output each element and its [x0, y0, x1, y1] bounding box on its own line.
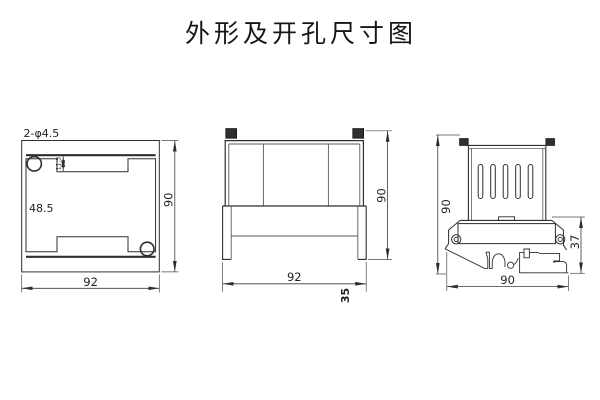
bezel-right-foot — [358, 206, 366, 259]
panel-inner-label: 48.5 — [29, 202, 54, 215]
fixing-tab — [353, 129, 364, 139]
din-clip-hole — [508, 262, 514, 268]
din-clip-block — [520, 249, 539, 270]
cutout-height-label: 90 — [162, 192, 176, 207]
vent-slot — [478, 165, 483, 199]
side-profile-view: 90 92 35 — [223, 129, 392, 304]
rear-body-outline — [468, 145, 545, 220]
dimension-drawing-canvas: 外形及开孔尺寸图 2-φ4.5 48.5 11.3 90 92 — [0, 0, 600, 400]
side-height-label: 90 — [374, 188, 388, 203]
bracket-height-label: 37 — [568, 235, 582, 250]
screw-head — [558, 237, 562, 241]
drawing-page: 外形及开孔尺寸图 2-φ4.5 48.5 11.3 90 92 — [0, 0, 600, 400]
front-face — [458, 224, 555, 244]
rail-view-height-label: 90 — [439, 199, 453, 214]
din-rail-side-view: 90 37 90 — [436, 135, 585, 291]
hole-callout-label: 2-φ4.5 — [24, 127, 60, 140]
notch-dim-label: 11.3 — [56, 157, 63, 171]
rear-body-outline — [225, 141, 363, 206]
vent-slot — [516, 165, 521, 199]
rail-view-width-label: 90 — [500, 273, 515, 287]
bezel-left-foot — [223, 206, 232, 259]
drawing-title: 外形及开孔尺寸图 — [185, 19, 417, 48]
screw-head — [452, 235, 461, 244]
panel-cutout-view: 2-φ4.5 48.5 11.3 90 92 — [22, 127, 179, 293]
vent-slot — [528, 165, 533, 199]
side-width-label: 92 — [287, 270, 302, 284]
din-clip-link — [514, 258, 518, 264]
fixing-tab — [460, 139, 469, 146]
fixing-tab — [226, 129, 237, 139]
vent-slot — [503, 165, 508, 199]
vent-slot — [491, 165, 496, 199]
mounting-hole-bottom-right — [140, 242, 154, 256]
din-rail-section — [520, 253, 569, 272]
side-depth-label: 35 — [339, 288, 352, 303]
fixing-tab — [546, 139, 555, 146]
cutout-width-label: 92 — [83, 275, 98, 289]
din-clip-spring — [445, 249, 505, 269]
